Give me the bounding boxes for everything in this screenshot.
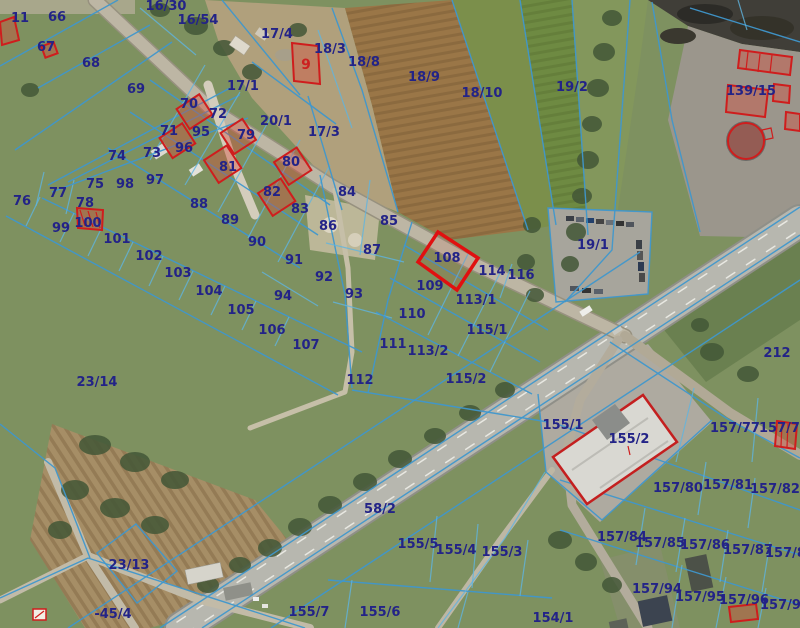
parcel-label-155/3: 155/3 [482, 545, 523, 560]
parcel-label-102: 102 [135, 249, 162, 264]
parcel-label-58/2: 58/2 [364, 502, 396, 517]
map-canvas[interactable]: 116667686916/3016/5417/4918/318/818/918/… [0, 0, 800, 628]
parcel-label-114: 114 [478, 264, 505, 279]
parcel-label-19/1: 19/1 [577, 238, 609, 253]
parcel-label-104: 104 [195, 284, 222, 299]
parcel-label-77: 77 [49, 186, 67, 201]
parcel-label-69: 69 [127, 82, 145, 97]
parcel-label-20/1: 20/1 [260, 114, 292, 129]
parcel-label-71: 71 [160, 124, 178, 139]
parcel-label--45/4: -45/4 [94, 607, 131, 622]
red-map-marker[interactable] [33, 609, 46, 620]
parcel-label-155/7: 155/7 [289, 605, 330, 620]
parcel-label-139/15: 139/15 [726, 84, 776, 99]
parcel-label-18/9: 18/9 [408, 70, 440, 85]
parcel-label-113/1: 113/1 [456, 293, 497, 308]
parcel-label-16/54: 16/54 [178, 13, 219, 28]
parcel-label-108: 108 [433, 251, 460, 266]
parcel-label-106: 106 [258, 323, 285, 338]
parcel-label-17/3: 17/3 [308, 125, 340, 140]
parcel-label-157/80: 157/80 [653, 481, 703, 496]
parcel-label-155/2: 155/2 [609, 432, 650, 447]
parcel-label-70: 70 [180, 97, 198, 112]
parcel-label-11: 11 [11, 11, 29, 26]
cadastral-map-svg: 116667686916/3016/5417/4918/318/818/918/… [0, 0, 800, 628]
parcel-label-154/1: 154/1 [533, 611, 574, 626]
parcel-label-90: 90 [248, 235, 266, 250]
parcel-label-88: 88 [190, 197, 208, 212]
parcel-label-115/1: 115/1 [467, 323, 508, 338]
parcel-label-86: 86 [319, 219, 337, 234]
parcel-label-98: 98 [116, 177, 134, 192]
parcel-label-19/2: 19/2 [556, 80, 588, 95]
parcel-label-105: 105 [227, 303, 254, 318]
parcel-label-18/10: 18/10 [462, 86, 503, 101]
parcel-label-84: 84 [338, 185, 356, 200]
parcel-label-157/85: 157/85 [635, 536, 685, 551]
parcel-label-97: 97 [146, 173, 164, 188]
parcel-label-155/6: 155/6 [360, 605, 401, 620]
parcel-label-101: 101 [103, 232, 130, 247]
parcel-label-155/4: 155/4 [436, 543, 477, 558]
parcel-label-79: 79 [237, 128, 255, 143]
parcel-label-155/1: 155/1 [543, 418, 584, 433]
parcel-label-99: 99 [52, 221, 70, 236]
parcel-label-89: 89 [221, 213, 239, 228]
parcel-label-212: 212 [763, 346, 790, 361]
parcel-label-68: 68 [82, 56, 100, 71]
parcel-label-112: 112 [346, 373, 373, 388]
parcel-label-81: 81 [219, 160, 237, 175]
parcel-label-82: 82 [263, 185, 281, 200]
parcel-label-91: 91 [285, 253, 303, 268]
parcel-label-157/95: 157/95 [675, 590, 725, 605]
parcel-label-74: 74 [108, 149, 126, 164]
parcel-label-18/3: 18/3 [314, 42, 346, 57]
parcel-label-110: 110 [398, 307, 425, 322]
parcel-label-155/5: 155/5 [398, 537, 439, 552]
parcel-label-109: 109 [416, 279, 443, 294]
parcel-label-23/14: 23/14 [77, 375, 118, 390]
parcel-label-115/2: 115/2 [446, 372, 487, 387]
parcel-label-80: 80 [282, 155, 300, 170]
parcel-label-157/82: 157/82 [750, 482, 800, 497]
parcel-label-111: 111 [379, 337, 406, 352]
parcel-label-87: 87 [363, 243, 381, 258]
parcel-label-17/1: 17/1 [227, 79, 259, 94]
parcel-label-157/88: 157/88 [765, 546, 800, 561]
parcel-label-100: 100 [74, 216, 101, 231]
parcel-label-66: 66 [48, 10, 66, 25]
parcel-label-78: 78 [76, 196, 94, 211]
parcel-label-94: 94 [274, 289, 292, 304]
parcel-label-75: 75 [86, 177, 104, 192]
parcel-label-96: 96 [175, 141, 193, 156]
parcel-label-93: 93 [345, 287, 363, 302]
parcel-label-76: 76 [13, 194, 31, 209]
parcel-label-67: 67 [37, 40, 55, 55]
parcel-label-107: 107 [292, 338, 319, 353]
parcel-label-157/78: 157/78 [759, 421, 800, 436]
parcel-label-113/2: 113/2 [408, 344, 449, 359]
parcel-label-18/8: 18/8 [348, 55, 380, 70]
parcel-label-9: 9 [301, 57, 311, 73]
parcel-label-17/4: 17/4 [261, 27, 293, 42]
parcel-label-92: 92 [315, 270, 333, 285]
parcel-label-157/97: 157/97 [760, 598, 800, 613]
parcel-label-72: 72 [209, 107, 227, 122]
parcel-label-85: 85 [380, 214, 398, 229]
parcel-label-16/30: 16/30 [146, 0, 187, 14]
parcel-label-73: 73 [143, 146, 161, 161]
parcel-label-83: 83 [291, 202, 309, 217]
parcel-label-103: 103 [164, 266, 191, 281]
parcel-label-23/13: 23/13 [109, 558, 150, 573]
parcel-label-157/81: 157/81 [703, 478, 753, 493]
parcel-label-95: 95 [192, 125, 210, 140]
parcel-label-116: 116 [507, 268, 534, 283]
parcel-label-157/77: 157/77 [710, 421, 760, 436]
